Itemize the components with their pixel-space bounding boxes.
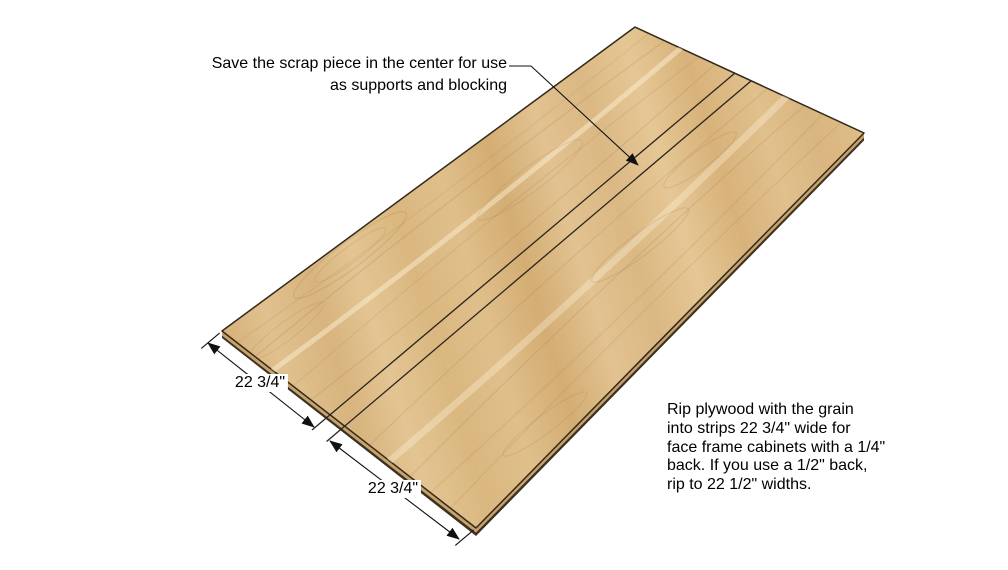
scrap-callout-line-1: Save the scrap piece in the center for u… bbox=[212, 53, 507, 75]
rip-instructions-line-2: into strips 22 3/4" wide for bbox=[667, 420, 885, 439]
rip-instructions-line-5: rip to 22 1/2" widths. bbox=[667, 476, 885, 495]
scrap-callout-text: Save the scrap piece in the center for u… bbox=[212, 53, 507, 96]
rip-instructions-line-1: Rip plywood with the grain bbox=[667, 401, 885, 420]
rip-instructions-text: Rip plywood with the grain into strips 2… bbox=[667, 401, 885, 495]
diagram-canvas: Save the scrap piece in the center for u… bbox=[0, 0, 1008, 570]
rip-instructions-line-3: face frame cabinets with a 1/4" bbox=[667, 439, 885, 458]
extension-line-left-corner bbox=[201, 333, 219, 349]
dimension-label-back-strip: 22 3/4" bbox=[365, 480, 421, 498]
scrap-callout-line-2: as supports and blocking bbox=[212, 75, 507, 97]
rip-instructions-line-4: back. If you use a 1/2" back, bbox=[667, 457, 885, 476]
dimension-label-front-strip: 22 3/4" bbox=[232, 374, 288, 392]
